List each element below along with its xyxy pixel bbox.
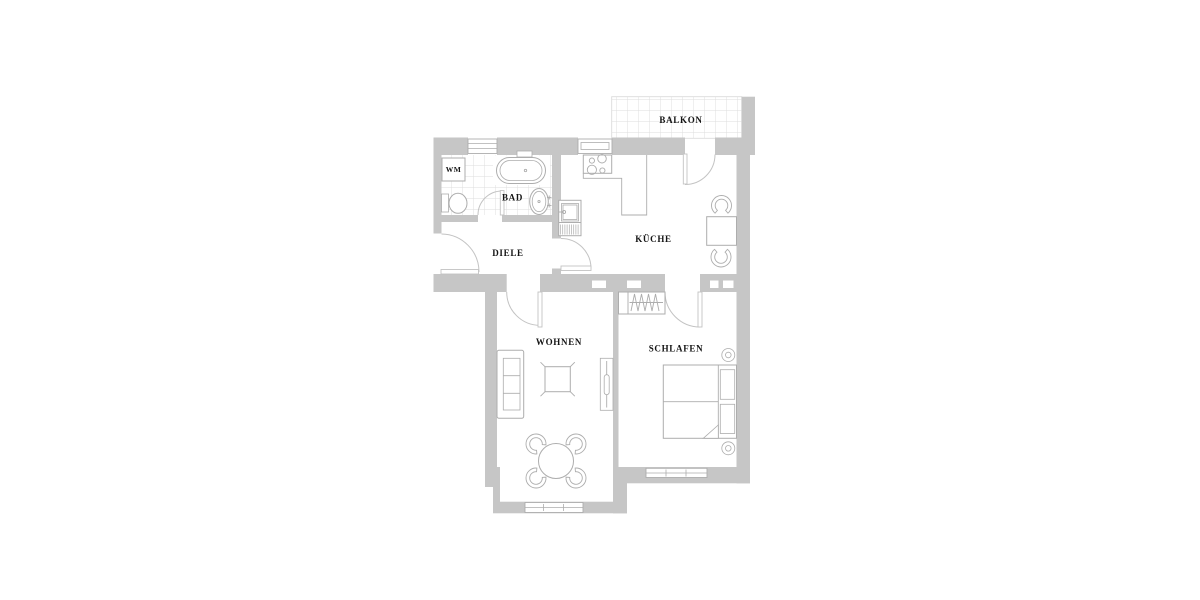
- door-kueche: [561, 239, 591, 271]
- label-kueche: KÜCHE: [635, 234, 672, 244]
- wall-divider-kueche-stub: [552, 269, 561, 293]
- door-schlafen: [665, 292, 702, 327]
- radiator: [600, 358, 613, 410]
- bedroom-furniture: [619, 292, 737, 455]
- wall-top-c: [612, 138, 685, 156]
- kitchen-chair-top: [712, 196, 732, 214]
- nightlamp-bottom: [722, 442, 735, 455]
- wardrobe: [619, 292, 666, 314]
- pillow-bottom: [720, 404, 734, 433]
- wall-niche-2: [627, 281, 641, 289]
- wall-niche-1: [592, 281, 606, 289]
- pillow-top: [720, 370, 734, 400]
- kitchen-chair-bottom: [711, 249, 731, 267]
- floor-plan-drawing: BALKON WM BAD DIELE KÜCHE WOHNEN SCHLAFE…: [0, 0, 1200, 600]
- wall-top-b: [497, 138, 578, 156]
- label-bad: BAD: [502, 193, 523, 203]
- label-schlafen: SCHLAFEN: [649, 344, 704, 354]
- livingroom-furniture: [497, 350, 613, 492]
- door-entry: [441, 234, 479, 274]
- wall-diele-south: [434, 274, 507, 292]
- label-wohnen: WOHNEN: [536, 337, 582, 347]
- coffee-table: [541, 362, 575, 396]
- label-wm: WM: [446, 165, 461, 174]
- wall-bad-south-b: [502, 215, 561, 222]
- bathtub-faucet: [517, 151, 532, 157]
- floor-plan-canvas: BALKON WM BAD DIELE KÜCHE WOHNEN SCHLAFE…: [0, 0, 1200, 600]
- wall-bay-step: [485, 467, 500, 487]
- window-kueche: [578, 139, 612, 154]
- kitchen-stove: [583, 154, 611, 174]
- wall-balcony-right: [742, 97, 755, 155]
- label-diele: DIELE: [492, 248, 524, 258]
- wall-niche-3: [710, 281, 719, 289]
- kitchen-sink-unit: [559, 200, 581, 235]
- kitchen-table: [707, 217, 737, 246]
- window-schlafen: [646, 468, 707, 477]
- wall-wohnen-left: [485, 292, 497, 467]
- door-wohnen: [507, 292, 542, 327]
- wall-right: [737, 138, 751, 484]
- label-balkon: BALKON: [659, 115, 702, 125]
- dining-table: [539, 444, 574, 479]
- toilet: [442, 193, 468, 213]
- wall-bay-left: [493, 487, 500, 502]
- nightlamp-top: [722, 349, 735, 362]
- bed: [663, 365, 736, 438]
- dining-set: [522, 430, 590, 492]
- window-bad: [468, 139, 497, 154]
- window-bay-wohnen: [525, 503, 583, 513]
- wall-divider-wohnen-schlafen: [613, 292, 619, 467]
- door-balkon: [683, 154, 715, 185]
- wall-bad-south-a: [434, 215, 479, 222]
- sofa: [497, 350, 524, 418]
- wall-niche-4: [723, 281, 734, 289]
